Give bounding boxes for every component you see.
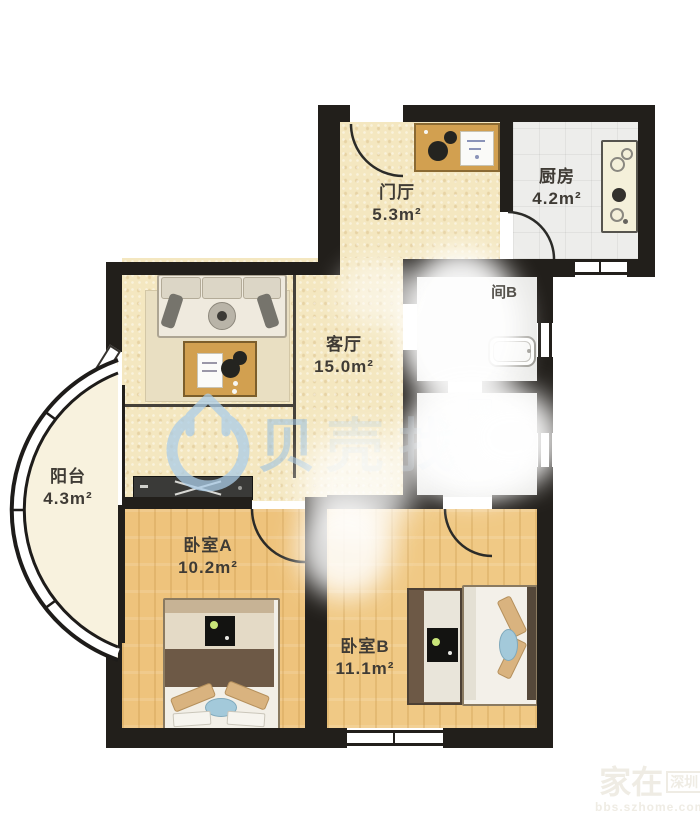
room-area: 15.0m² [314, 356, 374, 378]
site-watermark: 家在 深圳 bbs.szhome.com [595, 766, 700, 813]
console-decor [428, 141, 448, 161]
room-name: 厨房 [532, 166, 581, 188]
coffee-table [183, 341, 257, 397]
room-area: 4.2m² [532, 188, 581, 210]
bed-fold [464, 587, 476, 700]
coffee-table-book [197, 353, 223, 388]
knob-icon [623, 219, 628, 224]
balcony-mullion-tick [44, 411, 55, 419]
wall [537, 467, 553, 748]
console-decor [444, 131, 457, 144]
wall [482, 381, 553, 393]
bedroom-b-wardrobe [407, 588, 462, 705]
tv-power-dot [432, 638, 440, 646]
bathtub-drain [527, 349, 531, 353]
tv-power-dot [210, 621, 218, 629]
room-name: 间B [491, 282, 517, 304]
balcony-outer-frame [12, 360, 118, 660]
balcony-glass-band [18, 367, 118, 654]
wall [318, 105, 350, 122]
wall [106, 262, 122, 352]
window-mullion [599, 262, 601, 272]
balcony-inner-frame [24, 373, 118, 647]
tray-mark [469, 148, 481, 150]
room-area: 5.3m² [372, 204, 421, 226]
coffee-table-decor [233, 351, 247, 365]
coffee-table-dot [233, 381, 238, 386]
headboard-pillow [173, 711, 212, 728]
bedroom-b-bed [462, 585, 538, 706]
wall [106, 640, 122, 736]
tray-mark [467, 140, 485, 142]
wall [417, 381, 448, 393]
headboard-pillow [227, 711, 266, 728]
balcony-window [113, 385, 125, 505]
tray-mark [475, 155, 479, 159]
sofa [157, 274, 287, 338]
bed-foot-band [165, 600, 274, 613]
floorplan-canvas: 贝 壳找房 门厅 5.3m² 厨房 4.2m² 客厅 15.0m² 阳台 4.3… [0, 0, 700, 823]
bathroom-window [538, 323, 552, 357]
room-name: 卧室A [178, 535, 238, 557]
wall [106, 497, 252, 509]
room-label-living: 客厅 15.0m² [314, 334, 374, 378]
console-dot [424, 130, 428, 134]
sink-icon [621, 148, 633, 160]
tv-dot [448, 651, 452, 655]
room-name: 门厅 [372, 182, 421, 204]
room-name: 卧室B [336, 636, 395, 658]
tv-icon [427, 628, 458, 662]
bathtub [488, 336, 536, 367]
kitchen-counter [601, 140, 638, 233]
wall [638, 105, 655, 277]
bed-runner [499, 629, 518, 661]
room-label-bathroom-b: 间B [491, 282, 517, 304]
wall [305, 497, 327, 748]
wall [492, 495, 537, 509]
wall [403, 259, 575, 277]
room-name: 客厅 [314, 334, 374, 356]
room-label-bedroom-a: 卧室A 10.2m² [178, 535, 238, 579]
room-label-balcony: 阳台 4.3m² [43, 466, 92, 510]
room-label-kitchen: 厨房 4.2m² [532, 166, 581, 210]
stove-burner-icon [612, 188, 626, 202]
site-watermark-url: bbs.szhome.com [595, 801, 700, 813]
room-area: 11.1m² [336, 658, 395, 680]
kitchen-window [575, 259, 627, 275]
bathtub-inner [493, 341, 531, 362]
wall [403, 259, 417, 304]
book-line [202, 362, 217, 364]
brand-watermark-text-faded: 壳找房 [326, 399, 542, 483]
room-label-bedroom-b: 卧室B 11.1m² [336, 636, 395, 680]
tv-icon [205, 616, 235, 646]
sofa-cushion [202, 277, 242, 299]
tv-cabinet-mark [140, 485, 148, 488]
site-watermark-city-badge: 深圳 [666, 771, 700, 793]
site-watermark-row: 家在 深圳 [595, 766, 700, 798]
room-name: 阳台 [43, 466, 92, 488]
balcony-mullion-tick [44, 601, 55, 609]
console-tray [460, 131, 494, 166]
wall [403, 105, 655, 122]
wall [106, 262, 340, 275]
wall [327, 495, 443, 509]
balcony-floor [12, 360, 118, 660]
burner-icon [610, 208, 624, 222]
wall [500, 122, 513, 212]
wall [627, 259, 655, 277]
bed-headboard [527, 587, 536, 700]
room-area: 4.3m² [43, 488, 92, 510]
sink-icon [610, 157, 625, 172]
book-line [202, 370, 217, 372]
room-label-hall: 门厅 5.3m² [372, 182, 421, 226]
window-mullion [393, 733, 395, 743]
site-watermark-name: 家在 [599, 766, 663, 798]
entry-console-table [414, 123, 500, 172]
tv-dot [225, 636, 229, 640]
tv-cabinet-knob [238, 486, 242, 490]
room-area: 10.2m² [178, 557, 238, 579]
bedroom-a-bed [163, 598, 280, 732]
bed-blanket [165, 649, 274, 687]
brand-watermark-text: 贝 [258, 399, 330, 483]
bedroom-b-window [347, 730, 443, 746]
sofa-side-table-item [217, 311, 227, 321]
coffee-table-dot [232, 389, 237, 394]
wall [318, 122, 340, 263]
wall [113, 503, 125, 643]
